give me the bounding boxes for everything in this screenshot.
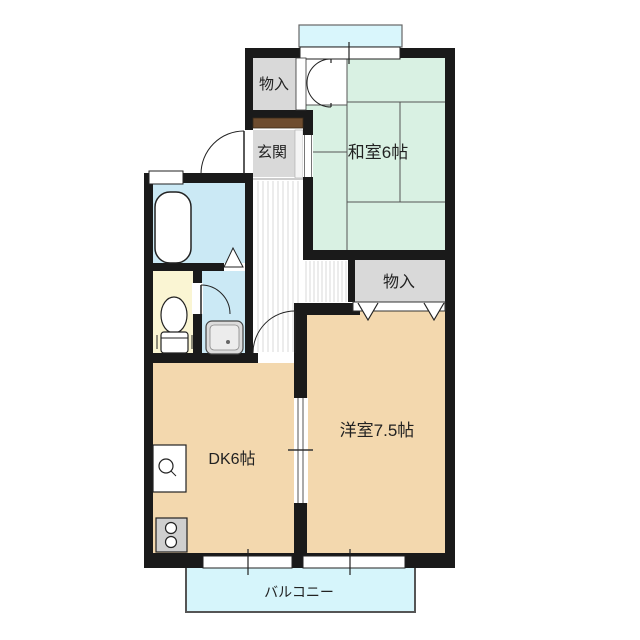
japanese-room-window-box [299, 25, 402, 47]
kitchen-sink [153, 445, 186, 492]
entrance-step [295, 130, 303, 178]
western-room-label: 洋室7.5帖 [340, 421, 415, 440]
entrance-door-arc [201, 131, 244, 174]
storage-top-sliding-door [296, 58, 306, 110]
bathroom-vent-window [149, 171, 183, 184]
storage-right-label: 物入 [383, 273, 415, 291]
washbasin [206, 321, 243, 354]
entrance-label: 玄関 [257, 144, 287, 161]
japanese-room-window [300, 47, 400, 59]
floor-plan: 物入 玄関 和室6帖 物入 洋室7.5帖 DK6帖 バルコニー [0, 0, 640, 640]
entrance-threshold [253, 118, 303, 128]
dining-kitchen-label: DK6帖 [208, 450, 255, 468]
japanese-room-label: 和室6帖 [348, 143, 408, 162]
western-room-window [303, 556, 405, 568]
storage-top-label: 物入 [259, 76, 289, 93]
stove [156, 518, 187, 552]
hallway-bend [303, 260, 355, 303]
balcony-label: バルコニー [264, 584, 334, 600]
bathtub [155, 192, 191, 263]
floor-plan-page: 物入 玄関 和室6帖 物入 洋室7.5帖 DK6帖 バルコニー [0, 0, 640, 640]
